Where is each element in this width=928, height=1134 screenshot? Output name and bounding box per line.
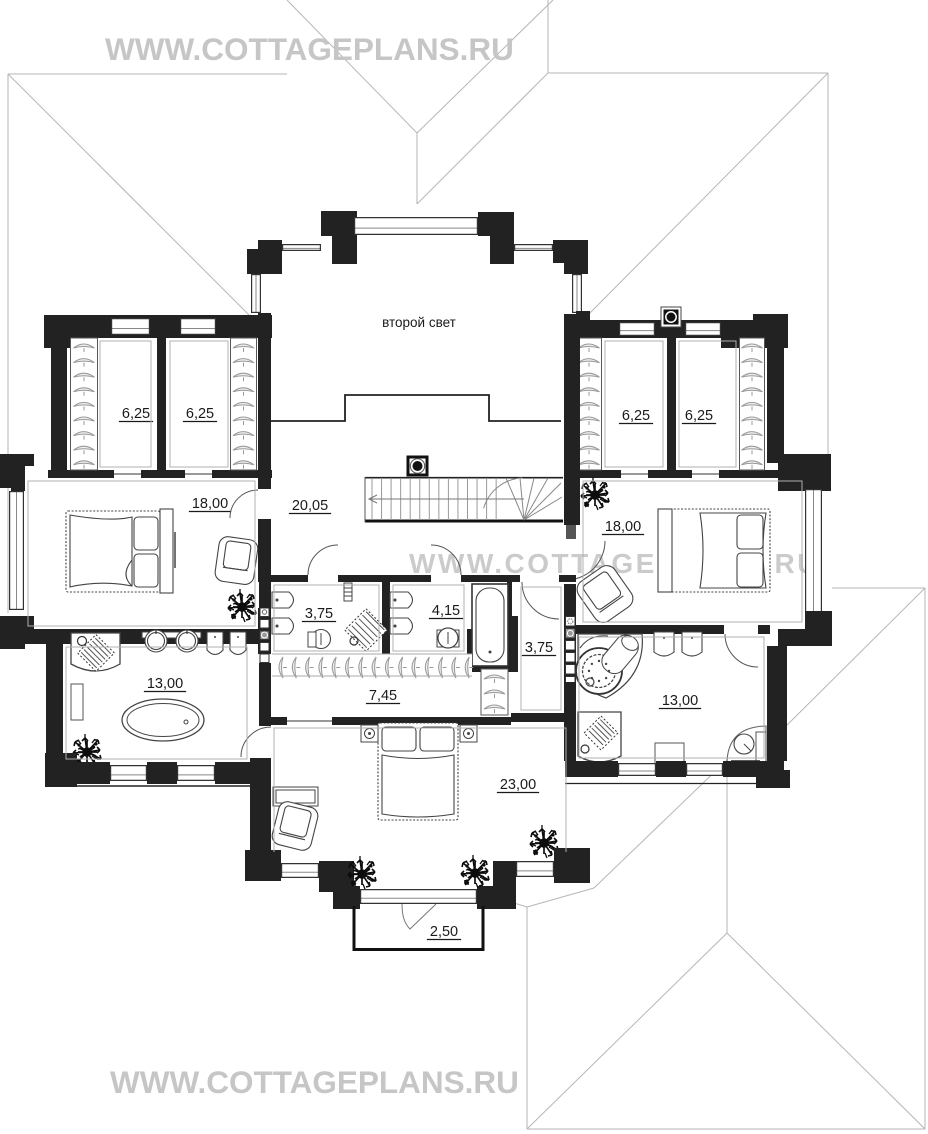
svg-text:WWW.COTTAGEPLANS.RU: WWW.COTTAGEPLANS.RU xyxy=(105,31,514,67)
svg-text:6,25: 6,25 xyxy=(622,408,650,424)
svg-text:2,50: 2,50 xyxy=(430,924,458,940)
svg-text:4,15: 4,15 xyxy=(432,603,460,619)
svg-text:18,00: 18,00 xyxy=(192,496,228,512)
svg-text:3,75: 3,75 xyxy=(305,606,333,622)
svg-text:второй свет: второй свет xyxy=(382,315,456,330)
svg-text:WWW.COTTAGEPLANS.RU: WWW.COTTAGEPLANS.RU xyxy=(110,1064,519,1100)
svg-text:7,45: 7,45 xyxy=(369,688,397,704)
svg-text:23,00: 23,00 xyxy=(500,777,536,793)
svg-text:6,25: 6,25 xyxy=(186,406,214,422)
svg-text:13,00: 13,00 xyxy=(147,676,183,692)
svg-text:3,75: 3,75 xyxy=(525,640,553,656)
svg-text:6,25: 6,25 xyxy=(122,406,150,422)
svg-text:6,25: 6,25 xyxy=(685,408,713,424)
svg-text:13,00: 13,00 xyxy=(662,693,698,709)
svg-text:18,00: 18,00 xyxy=(605,519,641,535)
svg-text:20,05: 20,05 xyxy=(292,498,328,514)
